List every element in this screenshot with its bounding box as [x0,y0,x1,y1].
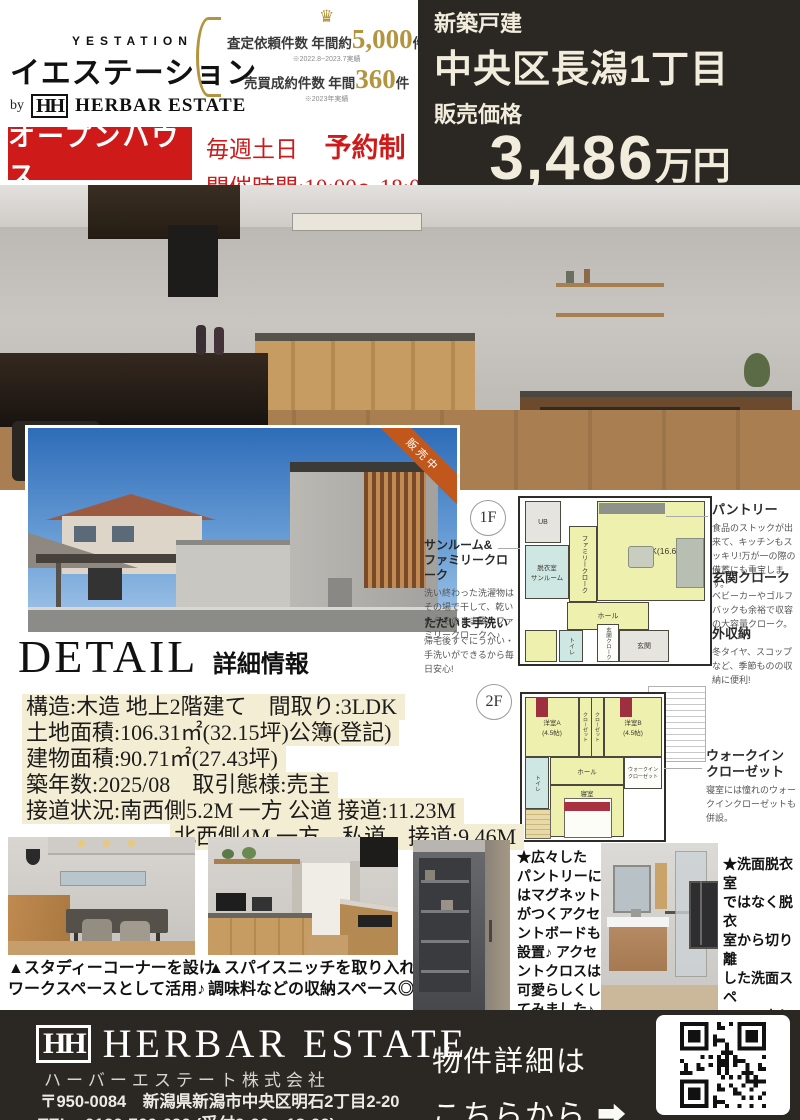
floorplan-1f: UB 脱衣室 サンルーム ファミリークローク LDK(16.6帖) ホール トイ… [518,496,712,666]
room-sunroom: 脱衣室 サンルーム [525,545,569,599]
award-line1: 査定依頼件数 年間約5,000件 [227,24,426,55]
floorplan-2f: 洋室A (4.5帖) クローゼット クローゼット 洋室B (4.5帖) ホール … [520,692,666,842]
annotation-wic: ウォークイン クローゼット 寝室には憧れのウォークインクローゼットも併設。 [706,748,798,825]
award-note1: ※2022.8~2023.7実績 [227,55,426,64]
award-note2: ※2023年実績 [227,95,426,104]
annotation-outdoor-storage: 外収納 冬タイヤ、スコップなど、季節ものの収納に便利! [712,626,798,687]
room-outside-storage [525,630,557,662]
connector-line [664,768,702,769]
price-value-row: 3,486万円 [434,123,786,194]
footer-address: 〒950-0084 新潟県新潟市中央区明石2丁目2-20 [40,1088,399,1112]
gallery-caption-kitchen: ▲スパイスニッチを取り入れ 調味料などの収納スペース◎ [208,958,418,1000]
open-house-badge: オープンハウス [8,127,192,180]
detail-row: 土地面積:106.31㎡(32.15坪)公簿(登記) [22,720,399,746]
detail-row: 建物面積:90.71㎡(27.43坪) [22,746,286,772]
open-house-reserve: 予約制 [324,133,405,163]
room-genkan-cloak: 玄関クローク [597,624,619,662]
room-b: 洋室B (4.5帖) [604,697,662,757]
arrow-right-icon: ➡ [597,1100,628,1120]
crown-icon: ♛ [227,10,426,24]
footer: HH HERBAR ESTATE ハーバーエステート株式会社 〒950-0084… [0,1010,800,1120]
room-wic: ウォークイン クローゼット [624,757,662,789]
room-ub: UB [525,501,561,543]
qr-code [656,1015,790,1115]
open-house-days: 毎週土日 [206,137,298,162]
detail-row: 構造:木造 地上2階建て 間取り:3LDK [22,694,405,720]
room-closet2: クローゼット [591,697,604,757]
room-family-cloak: ファミリークローク [569,526,597,602]
annotation-genkan-cloak: 玄関クローク ベビーカーやゴルフバックも余裕で収容の大容量クローク。 [712,570,798,631]
annotation-tadaima-tearai: ただいま手洗い 帰宅後すぐにうがい・手洗いができるから毎日安心! [424,616,516,676]
detail-row: 接道状況:南西側5.2M 一方 公道 接道:11.23M [22,798,464,824]
footer-logo-text: HERBAR ESTATE [103,1020,468,1067]
gallery-photo-kitchen [208,837,398,955]
room-hall-2f: ホール [550,757,624,785]
laurel-left-icon [196,17,221,97]
room-a: 洋室A (4.5帖) [525,697,579,757]
connector-line [666,516,708,517]
gallery-photo-washroom [601,843,718,1011]
property-location: 中央区長潟1丁目 [434,38,800,93]
detail-heading-en: DETAIL [18,631,198,682]
property-category: 新築戸建 [434,6,800,38]
award-line2: 売買成約件数 年間360件 [227,64,426,95]
gallery-photo-study [8,837,195,955]
floor1-label: 1F [470,500,506,536]
qr-pattern [680,1022,766,1108]
room-toilet-1f: トイレ [559,630,583,662]
detail-heading-jp: 詳細情報 [213,651,309,678]
exterior-photo: 販売中 [25,425,460,635]
room-genkan: 玄関 [619,630,669,662]
detail-heading: DETAIL 詳細情報 [18,630,309,683]
footer-logo-row: HH HERBAR ESTATE [36,1020,468,1067]
gallery-photo-pantry [413,840,510,1010]
hh-monogram-footer-icon: HH [36,1025,91,1063]
flyer-page: YESTATION イエステーション by HH HERBAR ESTATE ♛… [0,0,800,1120]
brand-by: by [10,98,24,114]
footer-tel: TEL : 0120-766-690 (受付9:00〜18:00) [38,1110,335,1120]
detail-row: 築年数:2025/08 取引態様:売主 [22,772,338,798]
room-toilet-2f: トイレ [525,757,549,809]
footer-cta: 物件詳細は こちらから ➡ [432,1038,628,1120]
gallery-caption-study: ▲スタディーコーナーを設け ワークスペースとして活用♪ [8,958,218,1000]
